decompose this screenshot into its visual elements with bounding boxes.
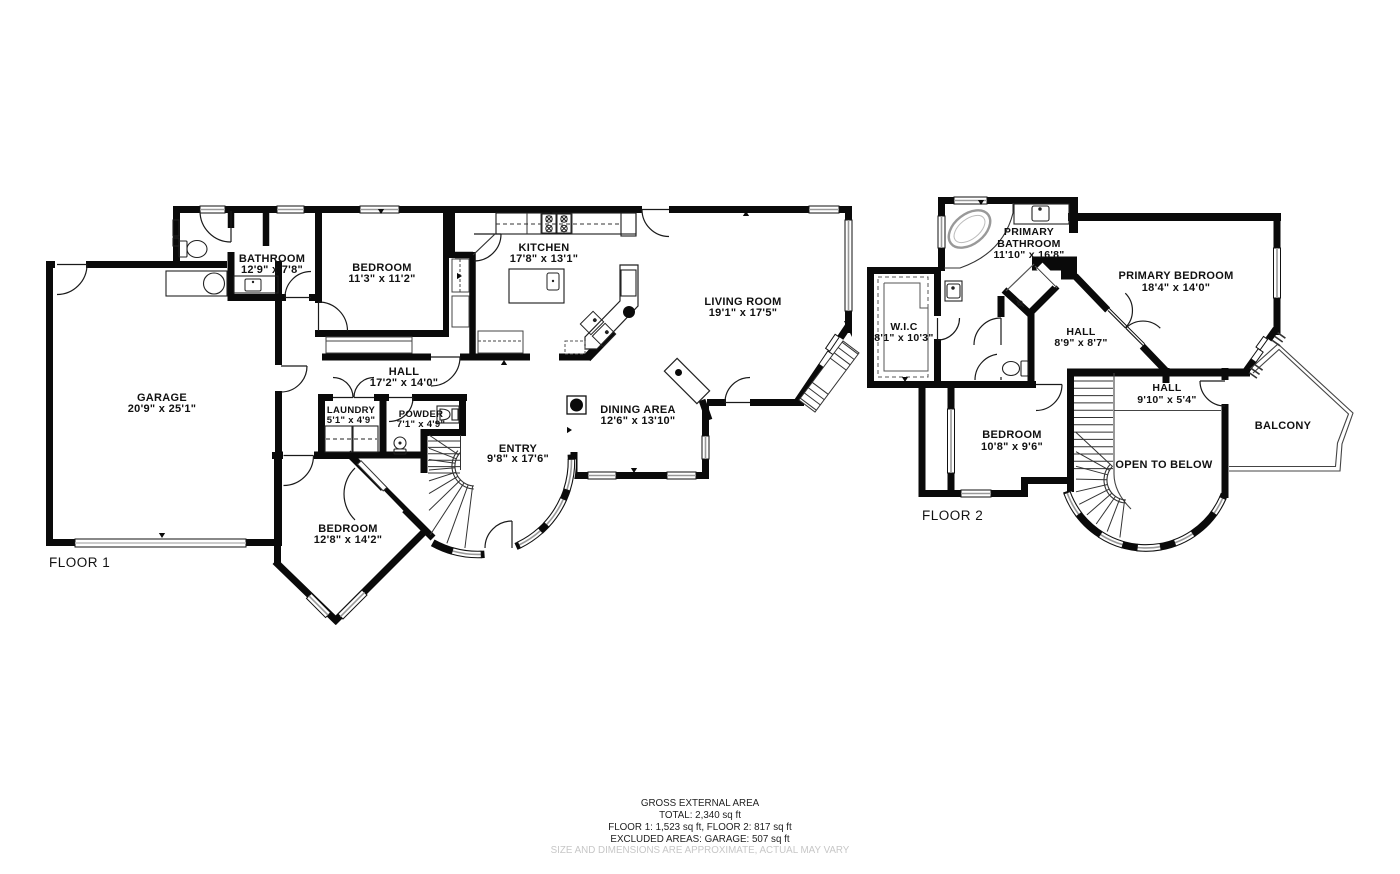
svg-text:9'10" x 5'4": 9'10" x 5'4" <box>1137 394 1196 406</box>
svg-text:SIZE AND DIMENSIONS ARE APPROX: SIZE AND DIMENSIONS ARE APPROXIMATE, ACT… <box>551 845 850 856</box>
svg-text:TOTAL: 2,340 sq ft: TOTAL: 2,340 sq ft <box>659 810 741 821</box>
svg-text:8'1" x 10'3": 8'1" x 10'3" <box>874 332 933 344</box>
svg-text:BEDROOM: BEDROOM <box>982 429 1042 441</box>
svg-text:11'3" x 11'2": 11'3" x 11'2" <box>348 273 415 285</box>
svg-text:EXCLUDED AREAS: GARAGE: 507 sq: EXCLUDED AREAS: GARAGE: 507 sq ft <box>610 834 789 845</box>
svg-text:12'6" x 13'10": 12'6" x 13'10" <box>601 415 676 427</box>
svg-text:OPEN TO BELOW: OPEN TO BELOW <box>1115 459 1213 471</box>
svg-text:GROSS EXTERNAL AREA: GROSS EXTERNAL AREA <box>641 798 760 809</box>
svg-text:19'1" x 17'5": 19'1" x 17'5" <box>709 307 778 319</box>
svg-text:12'9" x 7'8": 12'9" x 7'8" <box>241 264 303 276</box>
svg-text:PRIMARY: PRIMARY <box>1004 226 1054 238</box>
svg-text:11'10" x 16'8": 11'10" x 16'8" <box>993 249 1064 261</box>
svg-text:17'2" x 14'0": 17'2" x 14'0" <box>370 377 439 389</box>
svg-text:FLOOR 1: 1,523 sq ft, FLOOR 2:: FLOOR 1: 1,523 sq ft, FLOOR 2: 817 sq ft <box>608 822 792 833</box>
svg-text:HALL: HALL <box>1152 382 1181 394</box>
svg-text:18'4" x 14'0": 18'4" x 14'0" <box>1142 282 1211 294</box>
svg-text:5'1" x 4'9": 5'1" x 4'9" <box>327 415 376 426</box>
svg-text:12'8" x 14'2": 12'8" x 14'2" <box>314 534 383 546</box>
svg-text:BALCONY: BALCONY <box>1255 420 1312 432</box>
svg-text:FLOOR 2: FLOOR 2 <box>922 508 983 523</box>
svg-text:8'9" x 8'7": 8'9" x 8'7" <box>1054 337 1107 349</box>
svg-text:20'9" x 25'1": 20'9" x 25'1" <box>128 403 197 415</box>
svg-text:17'8" x 13'1": 17'8" x 13'1" <box>510 253 579 265</box>
svg-text:PRIMARY BEDROOM: PRIMARY BEDROOM <box>1118 270 1233 282</box>
svg-text:7'1" x 4'9": 7'1" x 4'9" <box>397 419 446 430</box>
svg-text:FLOOR 1: FLOOR 1 <box>49 555 110 570</box>
svg-text:10'8" x 9'6": 10'8" x 9'6" <box>981 441 1043 453</box>
svg-text:9'8" x 17'6": 9'8" x 17'6" <box>487 453 549 465</box>
